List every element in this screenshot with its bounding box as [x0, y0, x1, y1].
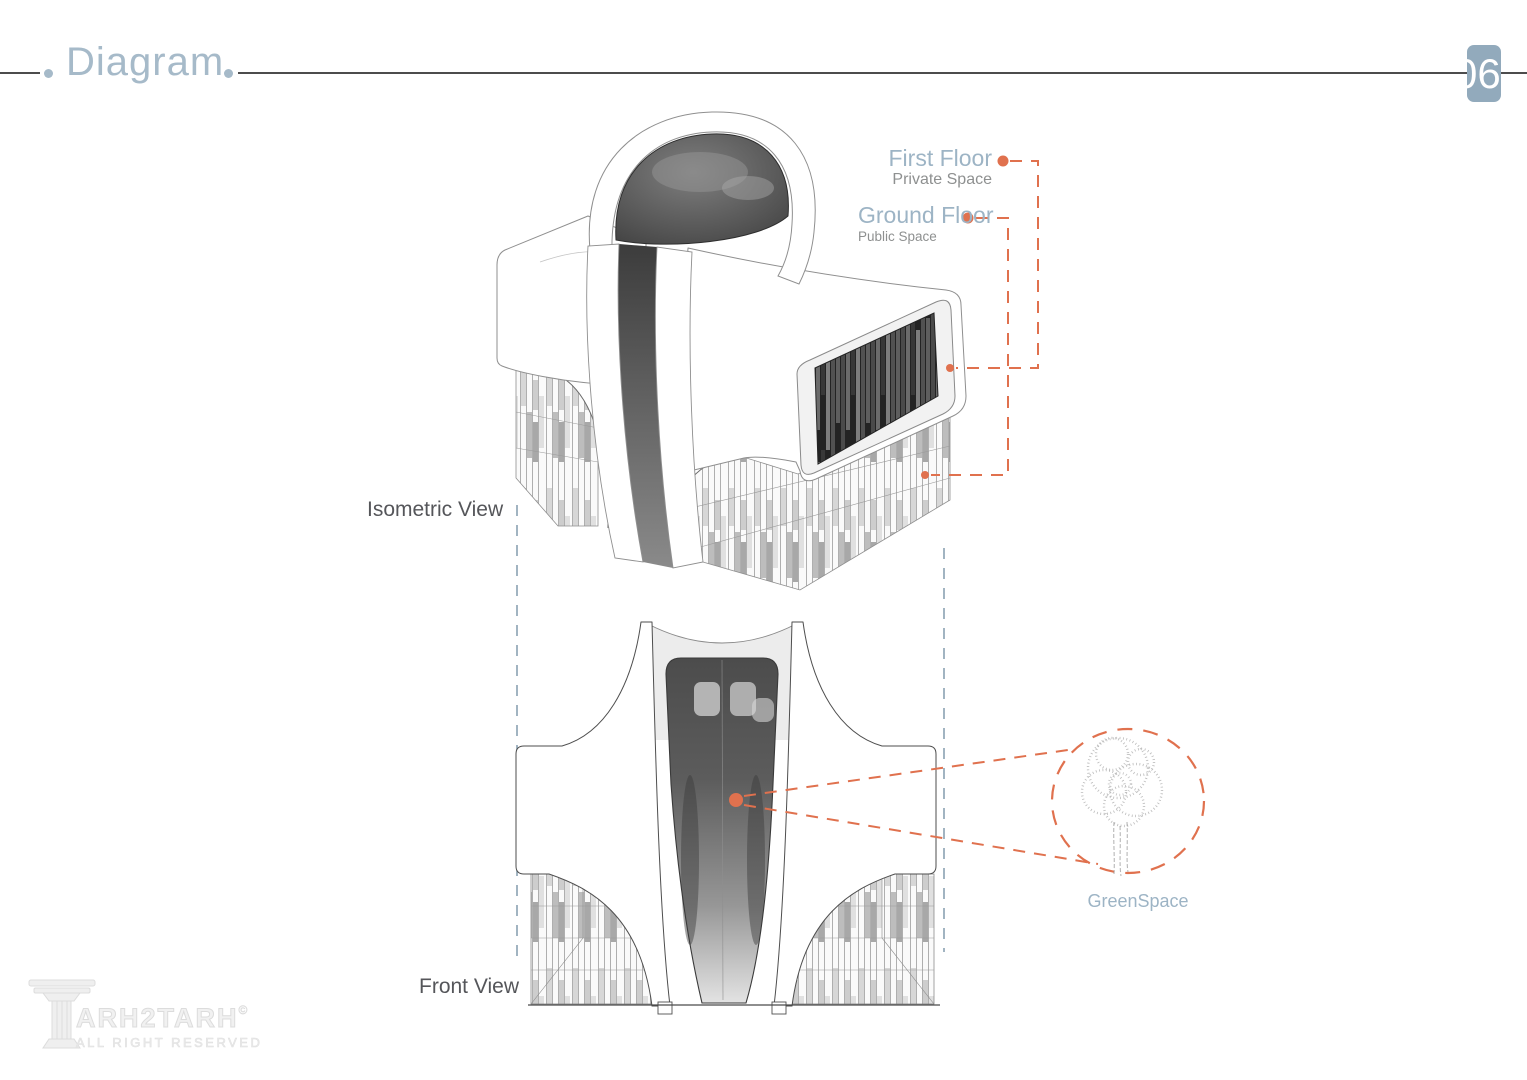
first-floor-marker-dot: [998, 156, 1009, 167]
watermark-tagline: ALL RIGHT RESERVED: [76, 1035, 262, 1050]
first-floor-leader: [956, 161, 1038, 368]
brand-watermark: ARH2TARH© ALL RIGHT RESERVED: [28, 975, 248, 1055]
ground-floor-sublabel: Public Space: [858, 230, 1018, 244]
brand-name: ARH2TARH: [76, 1003, 239, 1033]
ground-floor-label: Ground Floor: [858, 203, 1018, 227]
page-number-badge: 06: [1467, 45, 1501, 102]
watermark-text: ARH2TARH© ALL RIGHT RESERVED: [76, 1003, 262, 1050]
front-view-label: Front View: [419, 975, 519, 999]
greenspace-source-dot: [729, 793, 743, 807]
diagram-sheet: Diagram 06: [0, 0, 1527, 1080]
front-view-building: [516, 622, 940, 1014]
isometric-view-label: Isometric View: [367, 498, 503, 522]
copyright-icon: ©: [239, 1003, 248, 1017]
first-floor-label: First Floor: [790, 146, 992, 170]
greenspace-label: GreenSpace: [1048, 891, 1228, 912]
greenspace-dashed-circle: [1052, 729, 1204, 873]
ground-floor-target-dot: [921, 471, 929, 479]
tree-sketch-icon: [1082, 738, 1162, 826]
first-floor-target-dot: [946, 364, 954, 372]
greenspace-detail: [1052, 729, 1204, 876]
page-number: 06: [1467, 45, 1501, 102]
ground-floor-annotation: Ground Floor Public Space: [858, 203, 1018, 244]
first-floor-sublabel: Private Space: [790, 172, 992, 189]
first-floor-annotation: First Floor Private Space: [790, 146, 992, 189]
front-dark-channel: [666, 658, 778, 1003]
architecture-diagram: [0, 0, 1527, 1080]
